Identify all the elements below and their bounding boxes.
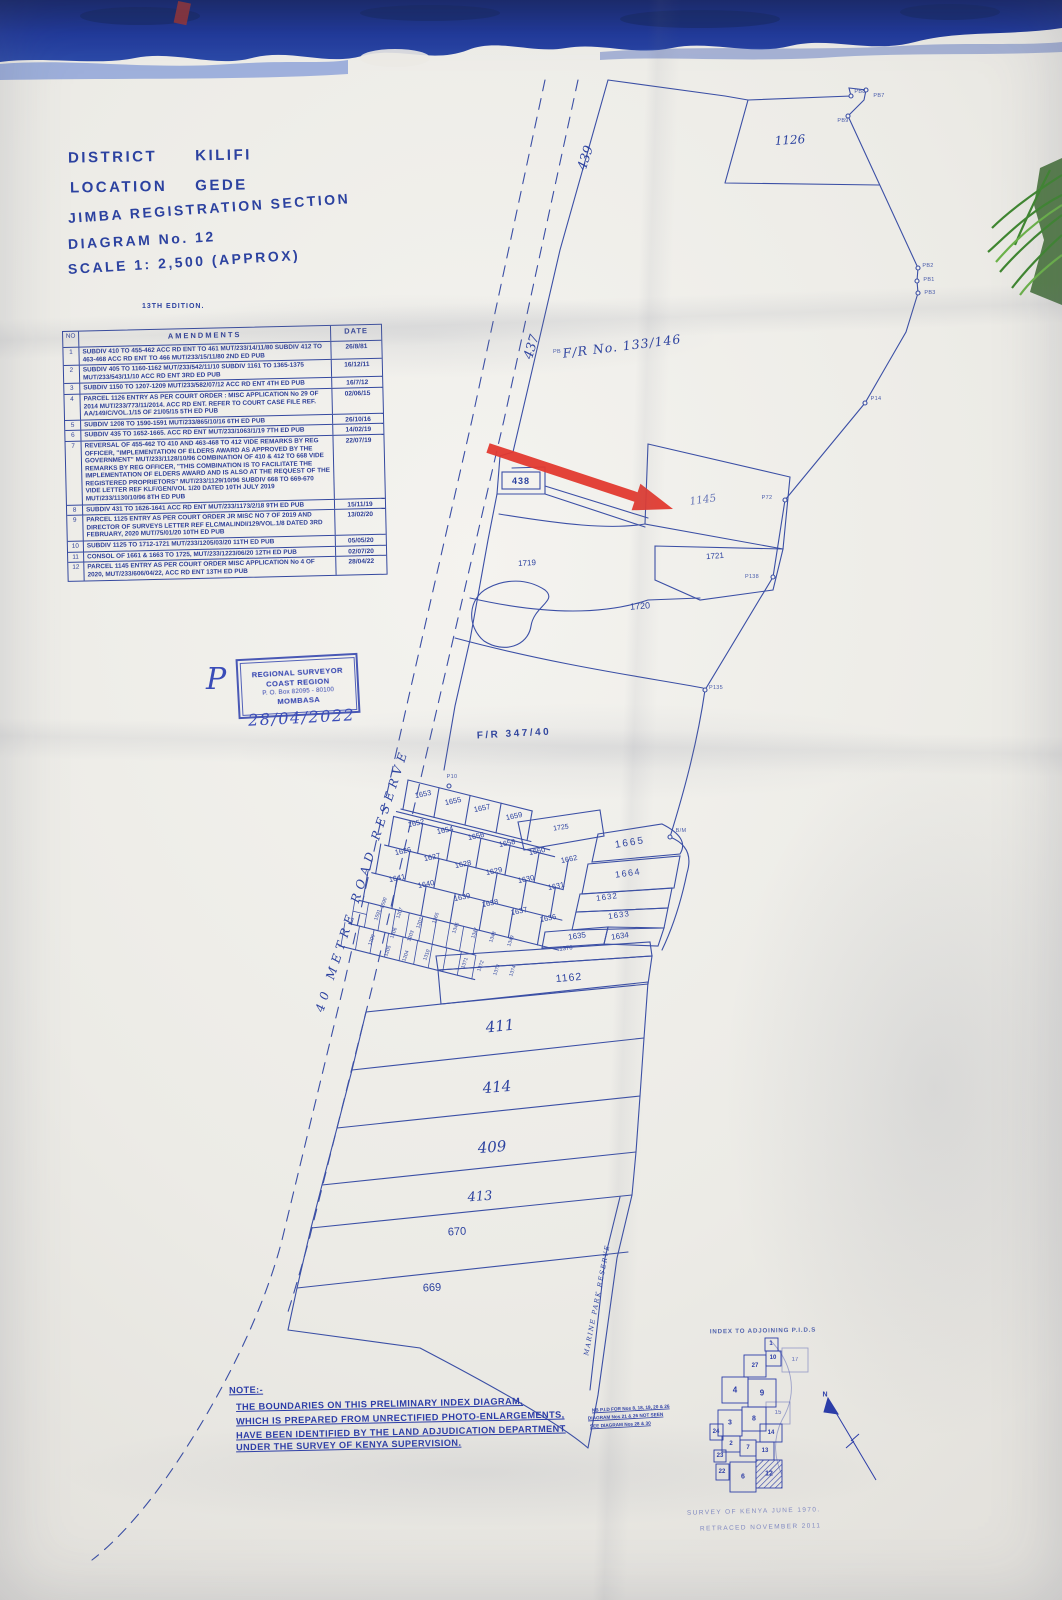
note-label: NOTE:-: [229, 1385, 263, 1396]
survey-point-markers: [447, 88, 920, 839]
index-cell-9: 9: [760, 1389, 764, 1398]
survey-point-pb7: PB7: [873, 93, 884, 99]
row-date: 28/04/22: [336, 556, 386, 574]
row-no: 8: [67, 505, 83, 515]
row-no: 5: [65, 420, 81, 430]
row-no: 1: [63, 348, 79, 365]
survey-point-pb: PB: [553, 349, 561, 355]
district-label: DISTRICT: [68, 148, 157, 167]
index-cell-3: 3: [728, 1420, 732, 1427]
location-label: LOCATION: [70, 178, 168, 197]
index-cell-27: 27: [752, 1363, 759, 1369]
parcel-label-1162: 1162: [555, 971, 583, 985]
survey-point-pb9: PB9: [837, 118, 848, 124]
index-cell-14: 14: [768, 1430, 775, 1436]
row-date: 13/02/20: [335, 509, 386, 535]
row-date: 22/07/19: [333, 435, 384, 498]
index-cell-13: 13: [762, 1448, 769, 1454]
parcel-label-1719: 1719: [518, 558, 536, 568]
plant-overlay: [988, 158, 1062, 305]
index-cell-23: 23: [717, 1453, 724, 1459]
row-date: 26/10/16: [333, 413, 383, 424]
north-arrow: [824, 1398, 876, 1480]
index-cell-8: 8: [752, 1416, 756, 1423]
row-no: 4: [64, 395, 81, 420]
row-date: 02/07/20: [336, 545, 386, 556]
amendment-row: 7REVERSAL OF 455-462 TO 410 AND 463-468 …: [65, 434, 384, 505]
row-no: 6: [65, 431, 81, 441]
survey-point-p138: P138: [745, 574, 759, 580]
edition-label: 13TH EDITION.: [142, 303, 204, 310]
parcel-label-409: 409: [477, 1137, 507, 1157]
row-no: 2: [64, 366, 80, 383]
handwritten-initial: P: [206, 662, 226, 697]
row-no: 7: [66, 442, 83, 505]
survey-point-p135: P135: [709, 685, 723, 691]
survey-point-pb3: PB3: [924, 290, 935, 296]
survey-point-p10: P10: [447, 774, 458, 780]
parcel-label-414: 414: [482, 1077, 512, 1097]
location-value: GEDE: [195, 176, 248, 194]
row-date: 14/02/19: [333, 424, 383, 435]
row-no: 12: [68, 563, 84, 580]
index-cell-15: 15: [775, 1410, 782, 1416]
row-date: 05/05/20: [336, 535, 386, 546]
parcel-label-1126: 1126: [774, 132, 805, 148]
survey-point-pb8: PB8: [854, 89, 865, 95]
row-text: REVERSAL OF 455-462 TO 410 AND 463-468 T…: [82, 436, 335, 504]
blue-ink-band: [0, 0, 1062, 80]
index-cell-7: 7: [746, 1445, 749, 1451]
header-district-row: DISTRICTKILIFI: [68, 146, 252, 166]
amendments-table: NO AMENDMENTS DATE 1SUBDIV 410 TO 455-46…: [62, 324, 388, 582]
row-date: 26/8/81: [331, 341, 381, 359]
row-date: 15/11/19: [335, 498, 385, 509]
scanned-survey-document: { "document": { "district_label": "DISTR…: [0, 0, 1062, 1600]
parcel-label-669: 669: [423, 1282, 442, 1295]
index-cell-4: 4: [733, 1386, 737, 1395]
road-parcel-438: 438: [512, 476, 530, 486]
header-location-row: LOCATIONGEDE: [70, 176, 248, 196]
row-no: 11: [68, 552, 84, 562]
index-cell-12: 12: [765, 1471, 773, 1478]
row-no: 3: [64, 384, 80, 394]
index-cell-1: 1: [769, 1341, 772, 1347]
row-no: 10: [68, 541, 84, 551]
index-cell-24: 24: [713, 1429, 720, 1435]
row-date: 02/06/15: [332, 388, 383, 414]
district-value: KILIFI: [195, 146, 252, 164]
index-cell-6: 6: [741, 1474, 745, 1481]
survey-point-pb2: PB2: [922, 263, 933, 269]
survey-point-p14: P14: [871, 396, 882, 402]
col-header-date: DATE: [331, 325, 381, 341]
index-cell-17: 17: [792, 1357, 799, 1363]
index-cell-22: 22: [719, 1469, 726, 1475]
survey-point-pb1: PB1: [923, 277, 934, 283]
parcel-label-1720: 1720: [630, 600, 651, 611]
survey-point-bm: B/M: [676, 828, 687, 834]
parcel-label-670: 670: [448, 1226, 467, 1239]
col-header-no: NO: [63, 332, 79, 347]
parcel-label-411: 411: [485, 1016, 515, 1037]
index-cell-10: 10: [770, 1355, 777, 1361]
stamp-line: MOMBASA: [277, 694, 320, 705]
row-date: 16/12/11: [332, 359, 382, 377]
survey-point-p72: P72: [762, 495, 773, 501]
parcel-label-1721: 1721: [706, 551, 724, 561]
road-reserve-dashed-lines: [92, 80, 578, 1560]
north-label: N: [822, 1392, 827, 1399]
parcel-label-413: 413: [467, 1189, 493, 1206]
index-cell-2: 2: [729, 1441, 732, 1447]
row-no: 9: [67, 516, 84, 541]
row-date: 16/7/12: [332, 377, 382, 388]
